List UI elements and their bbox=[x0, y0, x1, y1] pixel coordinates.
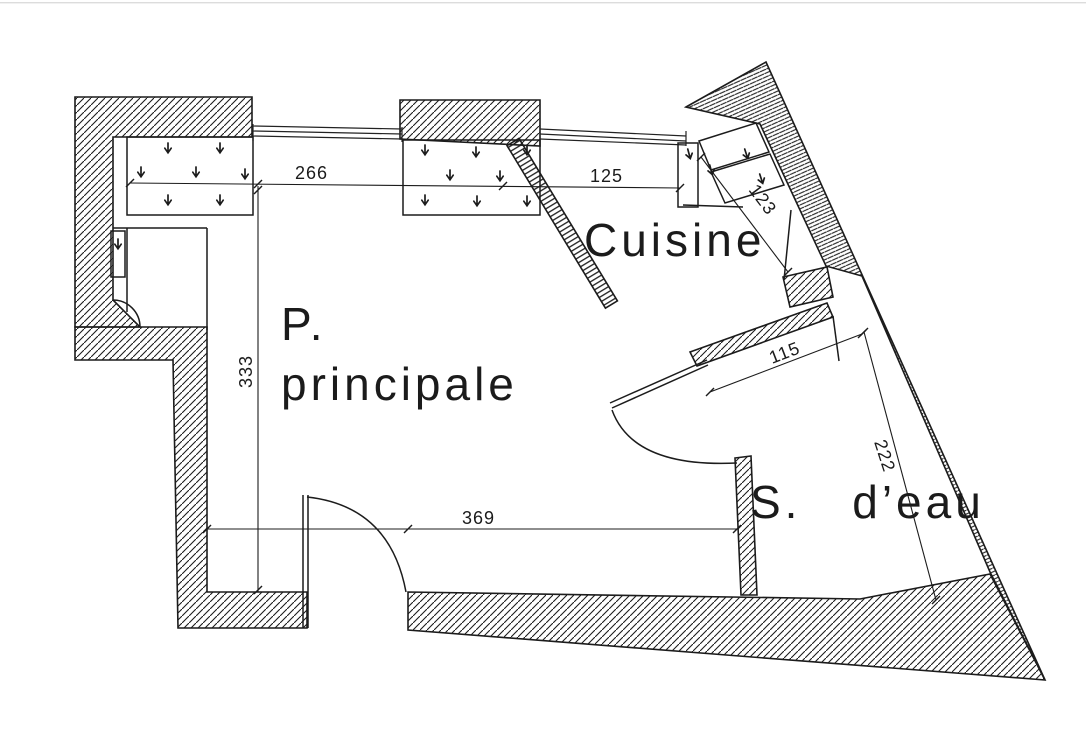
bath-door bbox=[610, 360, 737, 463]
dimension-top: 266 125 bbox=[126, 163, 684, 192]
wall-upper-left bbox=[75, 97, 252, 327]
window-top-left bbox=[253, 124, 402, 142]
window-top-right bbox=[540, 129, 686, 146]
wall-kitchen-bath-pier bbox=[783, 267, 833, 307]
dim-333: 333 bbox=[236, 355, 256, 388]
dim-266: 266 bbox=[295, 163, 328, 183]
airflow-arrow-icon bbox=[422, 195, 428, 205]
airflow-arrow-icon bbox=[242, 169, 248, 179]
room-label-main-line2: principale bbox=[281, 358, 518, 410]
airflow-arrow-icon bbox=[474, 196, 480, 206]
dimension-left-height: 333 bbox=[236, 186, 262, 594]
airflow-arrow-icon bbox=[447, 170, 453, 180]
bottom-entry-door bbox=[303, 495, 406, 628]
dim-369: 369 bbox=[462, 508, 495, 528]
dim-222: 222 bbox=[870, 437, 899, 475]
floor-plan-canvas: 266 125 333 369 115 123 222 P. principal… bbox=[0, 0, 1086, 746]
door-swing-arc bbox=[307, 497, 406, 592]
airflow-arrow-icon bbox=[138, 167, 144, 177]
airflow-arrow-icon bbox=[422, 145, 428, 155]
scan-artifact-line bbox=[0, 2, 1086, 3]
airflow-arrow-icon bbox=[524, 196, 530, 206]
exterior-walls bbox=[75, 62, 1045, 680]
wall-lower-left bbox=[75, 327, 307, 628]
dim-125: 125 bbox=[590, 166, 623, 186]
wall-bottom-wedge bbox=[408, 574, 1045, 680]
floor-plan-page: 266 125 333 369 115 123 222 P. principal… bbox=[0, 0, 1086, 746]
door-swing-arc bbox=[612, 410, 737, 463]
airflow-arrow-icon bbox=[497, 171, 503, 181]
airflow-arrow-icon bbox=[115, 239, 121, 249]
airflow-arrow-icon bbox=[217, 195, 223, 205]
room-label-kitchen: Cuisine bbox=[584, 214, 765, 266]
room-label-main-line1: P. bbox=[281, 298, 327, 350]
wall-bath-passage bbox=[690, 303, 833, 366]
airflow-arrow-icon bbox=[165, 195, 171, 205]
dimension-bottom: 369 bbox=[203, 508, 741, 533]
airflow-arrow-icon bbox=[165, 143, 171, 153]
airflow-arrow-icon bbox=[217, 143, 223, 153]
airflow-arrow-icon bbox=[193, 167, 199, 177]
airflow-arrow-icon bbox=[473, 147, 479, 157]
sill-box-left bbox=[127, 137, 253, 215]
dimension-bath-wall: 222 bbox=[860, 328, 940, 604]
dim-115: 115 bbox=[766, 338, 803, 368]
airflow-arrow-icon bbox=[685, 148, 694, 159]
room-label-bathroom: S. d’eau bbox=[750, 476, 985, 528]
